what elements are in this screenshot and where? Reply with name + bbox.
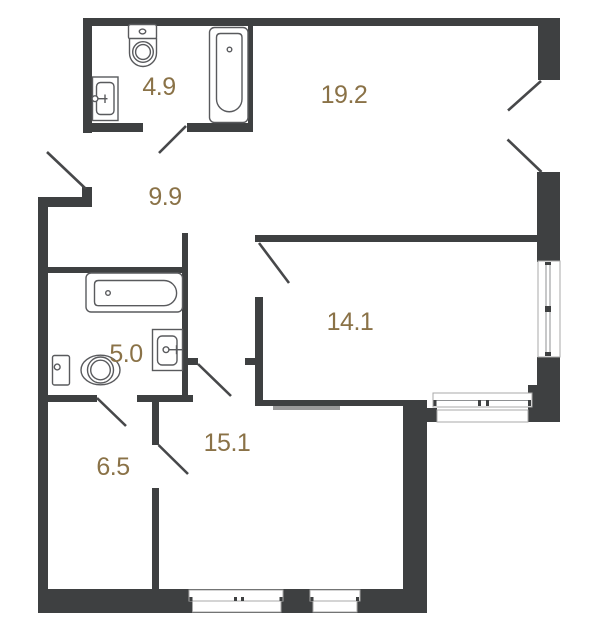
window-bottom-left xyxy=(189,590,283,612)
wall xyxy=(83,18,92,133)
bathtub-icon xyxy=(86,273,183,312)
door-swing-balcony-lower xyxy=(508,140,542,173)
wall xyxy=(82,187,92,199)
wall xyxy=(137,395,193,402)
wall xyxy=(537,172,560,262)
door-jamb xyxy=(188,358,198,365)
wall xyxy=(48,267,188,273)
door-swing-entry xyxy=(47,152,86,189)
wall xyxy=(83,123,143,132)
sink-icon xyxy=(92,77,118,121)
wall-shadow xyxy=(273,406,340,410)
room-area-label-kitchen-room: 15.1 xyxy=(204,429,251,457)
wall xyxy=(403,400,427,613)
wall xyxy=(248,18,253,132)
door-jamb xyxy=(245,358,255,365)
bathtub-icon xyxy=(210,28,249,123)
window-sill xyxy=(437,410,528,422)
window-sill xyxy=(193,601,282,612)
wall xyxy=(43,395,97,402)
door-swing-bathroom-top xyxy=(159,126,186,153)
wall xyxy=(187,123,253,132)
wall xyxy=(255,235,537,242)
window-bedroom-bottom xyxy=(433,393,532,422)
door-swing-corridor xyxy=(198,364,231,396)
wall xyxy=(152,488,159,589)
door-swing-bathroom-left xyxy=(97,398,126,426)
door-swing-balcony-upper xyxy=(508,81,541,111)
door-swing-inner-hall xyxy=(159,445,189,474)
wall xyxy=(38,197,48,613)
wall xyxy=(538,18,560,80)
wall xyxy=(528,385,560,422)
window-frame xyxy=(310,590,360,601)
wall xyxy=(152,402,159,445)
window-sill xyxy=(313,601,357,612)
room-area-label-bedroom: 14.1 xyxy=(327,308,374,336)
toilet-icon xyxy=(129,25,157,67)
room-area-label-living-room: 19.2 xyxy=(321,81,368,109)
wall xyxy=(182,233,188,402)
room-area-label-inner-hall: 6.5 xyxy=(96,453,129,481)
sink-icon xyxy=(153,330,183,371)
wall xyxy=(255,297,263,403)
room-area-label-bathroom-left: 5.0 xyxy=(109,340,142,368)
door-swing-bedroom xyxy=(259,243,289,283)
floorplan-drawing: 4.9 19.2 9.9 14.1 5.0 15.1 6.5 xyxy=(0,0,600,640)
window-right xyxy=(538,261,560,357)
room-area-label-hallway: 9.9 xyxy=(148,183,181,211)
floorplan-canvas: 4.9 19.2 9.9 14.1 5.0 15.1 6.5 xyxy=(0,0,600,640)
wall xyxy=(255,400,403,406)
wall xyxy=(415,408,437,422)
window-bottom-right xyxy=(310,590,360,612)
room-area-label-bathroom-top: 4.9 xyxy=(142,73,175,101)
